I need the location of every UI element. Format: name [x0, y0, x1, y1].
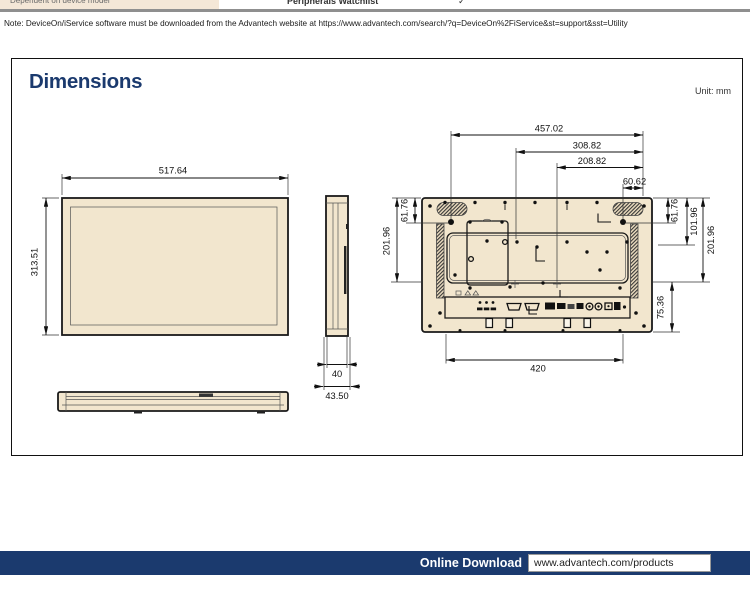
- mount-rail-left: [437, 224, 445, 298]
- hdmi-port: [545, 303, 555, 310]
- speaker-grille-right: [613, 203, 643, 216]
- front-view-drawing: 517.64 313.51: [30, 166, 289, 336]
- dim-rear-left-span: 201.96: [382, 227, 392, 255]
- rear-view-drawing: 457.02 308.82 208.82 60.62 61.76 201.96 …: [382, 124, 717, 374]
- usb-port: [557, 303, 566, 309]
- dim-front-width: 517.64: [159, 166, 187, 176]
- dim-rear-right-mid-span: 101.96: [689, 207, 699, 235]
- footer-bar: Online Download www.advantech.com/produc…: [0, 551, 750, 575]
- terminal-block: [614, 302, 621, 310]
- dim-rear-right-span: 201.96: [706, 226, 716, 254]
- dim-rear-top-width: 457.02: [535, 124, 563, 134]
- dim-rear-left-top-offset: 61.76: [400, 199, 410, 222]
- mount-rail-right: [631, 224, 639, 298]
- dim-rear-mid-width: 308.82: [573, 141, 601, 151]
- side-view-drawing: 40 43.50: [314, 196, 360, 401]
- datasheet-page: Dependent on device model Peripherals Wa…: [0, 0, 750, 591]
- bottom-view-drawing: [58, 392, 288, 414]
- dim-front-height: 313.51: [30, 248, 40, 276]
- dim-rear-inner-width: 208.82: [578, 156, 606, 166]
- download-url-link[interactable]: www.advantech.com/products: [528, 554, 711, 572]
- dim-side-total-depth: 43.50: [325, 391, 348, 401]
- dim-rear-io-height: 75.36: [656, 296, 666, 319]
- dim-rear-right-top-offset: 61.76: [670, 199, 680, 222]
- dim-rear-corner-offset: 60.62: [623, 177, 646, 187]
- dim-rear-mount-width: 420: [530, 364, 546, 374]
- dimension-drawing: 517.64 313.51 40 43.50: [0, 0, 750, 591]
- online-download-label: Online Download: [0, 551, 522, 575]
- speaker-grille-left: [437, 203, 467, 216]
- dim-side-depth: 40: [332, 369, 342, 379]
